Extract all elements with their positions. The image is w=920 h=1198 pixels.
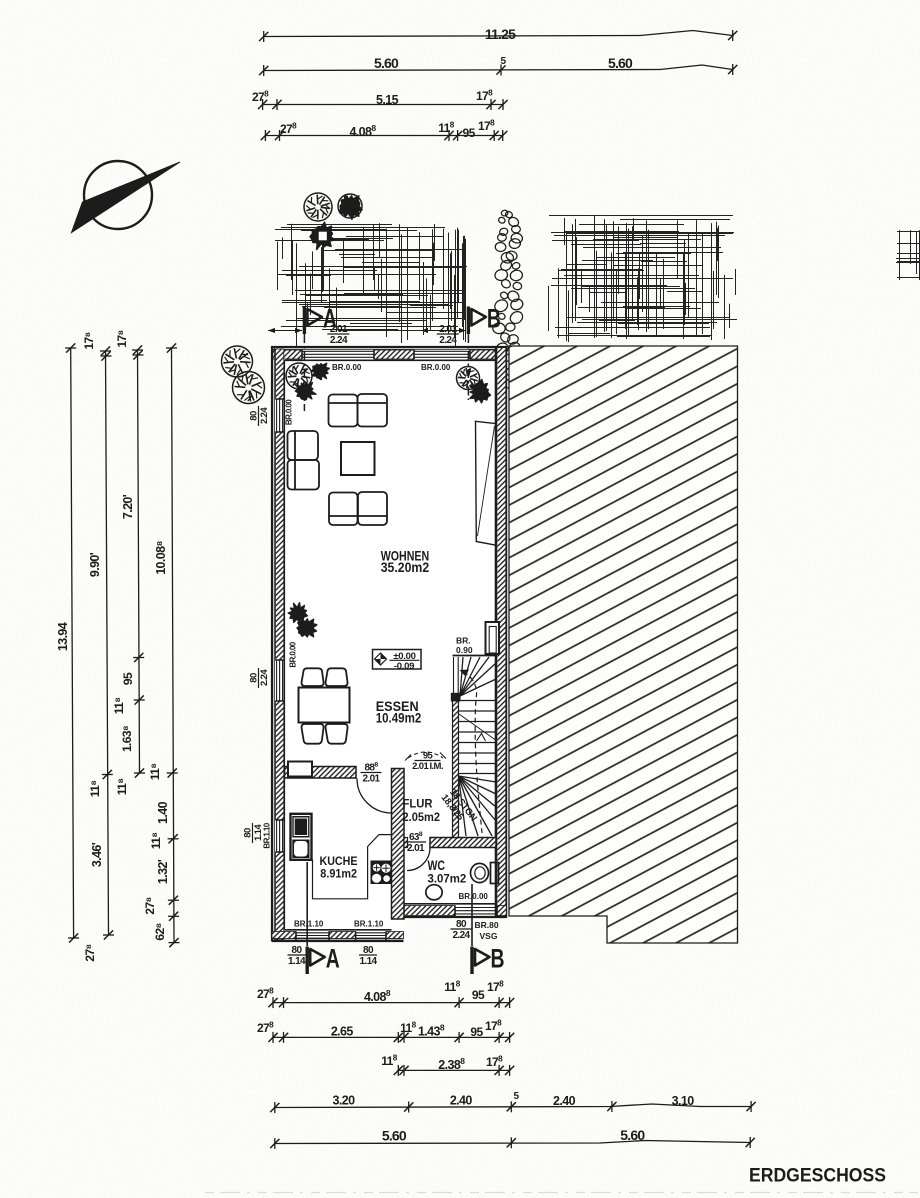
svg-text:3.07m2: 3.07m2 bbox=[428, 872, 467, 886]
svg-text:3.20: 3.20 bbox=[333, 1094, 356, 1108]
svg-text:27⁸: 27⁸ bbox=[83, 944, 97, 961]
svg-text:B: B bbox=[487, 304, 501, 334]
svg-text:11.25: 11.25 bbox=[485, 26, 516, 42]
svg-text:13.94: 13.94 bbox=[56, 622, 70, 651]
svg-text:2.24: 2.24 bbox=[452, 930, 470, 941]
svg-text:17⁸: 17⁸ bbox=[82, 332, 96, 349]
svg-text:5.60: 5.60 bbox=[382, 1128, 407, 1144]
svg-text:9.90': 9.90' bbox=[88, 552, 102, 577]
svg-text:10.49m2: 10.49m2 bbox=[376, 711, 422, 726]
svg-text:62⁸: 62⁸ bbox=[153, 923, 167, 940]
svg-text:95: 95 bbox=[121, 672, 135, 685]
svg-text:27⁸: 27⁸ bbox=[143, 897, 157, 914]
svg-text:95: 95 bbox=[463, 126, 476, 140]
svg-text:-0.09: -0.09 bbox=[394, 661, 414, 672]
svg-text:VSG: VSG bbox=[480, 931, 498, 941]
svg-text:80: 80 bbox=[248, 411, 259, 421]
svg-text:7.20': 7.20' bbox=[121, 494, 135, 519]
svg-text:80: 80 bbox=[363, 945, 374, 956]
svg-text:1.14: 1.14 bbox=[359, 956, 377, 967]
svg-text:2.05m2: 2.05m2 bbox=[403, 810, 441, 824]
svg-text:5.15: 5.15 bbox=[376, 93, 399, 107]
svg-text:17⁸: 17⁸ bbox=[115, 330, 129, 347]
svg-text:2.40: 2.40 bbox=[553, 1094, 576, 1108]
svg-text:2.24: 2.24 bbox=[259, 407, 270, 424]
svg-text:11⁸: 11⁸ bbox=[148, 764, 162, 781]
svg-text:5.60: 5.60 bbox=[608, 55, 633, 71]
svg-text:2.24: 2.24 bbox=[439, 335, 457, 346]
svg-text:2.24: 2.24 bbox=[259, 669, 270, 686]
svg-text:80: 80 bbox=[248, 673, 259, 683]
svg-text:BR.0.00: BR.0.00 bbox=[332, 363, 362, 372]
svg-text:A: A bbox=[326, 944, 340, 974]
svg-text:BR.1.10: BR.1.10 bbox=[354, 920, 384, 929]
svg-text:3.10: 3.10 bbox=[672, 1094, 695, 1108]
svg-text:2.40: 2.40 bbox=[450, 1094, 473, 1108]
svg-text:2.01: 2.01 bbox=[362, 773, 380, 784]
svg-text:1.14: 1.14 bbox=[288, 956, 306, 967]
svg-text:B: B bbox=[491, 944, 505, 974]
svg-text:80: 80 bbox=[292, 945, 303, 956]
svg-text:11⁸: 11⁸ bbox=[115, 779, 129, 796]
svg-text:8.91m2: 8.91m2 bbox=[320, 866, 357, 880]
svg-text:10.08⁸: 10.08⁸ bbox=[154, 541, 168, 575]
svg-text:95: 95 bbox=[472, 988, 485, 1002]
svg-text:2.65: 2.65 bbox=[331, 1025, 354, 1039]
svg-text:5.60: 5.60 bbox=[620, 1127, 645, 1143]
svg-text:11⁸: 11⁸ bbox=[112, 698, 126, 715]
svg-text:ERDGESCHOSS: ERDGESCHOSS bbox=[749, 1166, 886, 1187]
svg-text:BR.1.10: BR.1.10 bbox=[263, 822, 272, 848]
svg-text:BR.1.10: BR.1.10 bbox=[294, 920, 324, 929]
svg-text:5.60: 5.60 bbox=[374, 55, 399, 71]
svg-text:1.32': 1.32' bbox=[156, 859, 170, 884]
svg-text:BR.0.00: BR.0.00 bbox=[421, 363, 451, 372]
svg-text:1.40: 1.40 bbox=[156, 801, 170, 824]
svg-text:BR.: BR. bbox=[456, 636, 471, 646]
svg-text:3.46': 3.46' bbox=[90, 842, 104, 867]
svg-text:BR.80: BR.80 bbox=[475, 920, 499, 930]
svg-text:80: 80 bbox=[242, 828, 253, 838]
svg-text:35.20m2: 35.20m2 bbox=[381, 559, 430, 575]
svg-text:0.90: 0.90 bbox=[456, 645, 473, 655]
svg-text:95: 95 bbox=[470, 1025, 483, 1039]
svg-text:1.63⁸: 1.63⁸ bbox=[120, 726, 134, 752]
svg-text:2.01: 2.01 bbox=[330, 324, 348, 335]
svg-text:2.01: 2.01 bbox=[407, 843, 425, 854]
svg-text:BR.0.00: BR.0.00 bbox=[289, 641, 298, 667]
svg-text:2.24: 2.24 bbox=[330, 335, 348, 346]
svg-text:1.14: 1.14 bbox=[253, 824, 264, 841]
svg-text:2.01 I.M.: 2.01 I.M. bbox=[412, 761, 443, 772]
svg-text:11⁸: 11⁸ bbox=[88, 781, 102, 798]
svg-text:11⁸: 11⁸ bbox=[149, 833, 163, 850]
svg-text:BR.0.00: BR.0.00 bbox=[285, 399, 294, 425]
svg-text:FLUR: FLUR bbox=[403, 797, 433, 811]
svg-text:BR.0.00: BR.0.00 bbox=[459, 892, 489, 901]
svg-text:80: 80 bbox=[456, 919, 467, 930]
svg-text:2.01: 2.01 bbox=[439, 324, 457, 335]
